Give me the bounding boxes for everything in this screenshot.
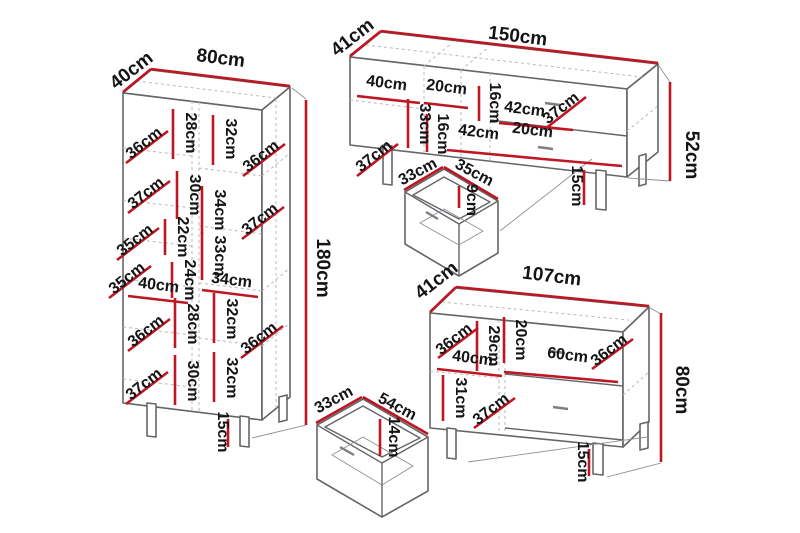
dim-label: 31cm — [452, 378, 469, 419]
furniture-dimensions-diagram: 40cm 80cm 180cm 15cm 36cm 28cm 32cm 36cm… — [0, 0, 800, 533]
dim-label: 30cm — [186, 175, 203, 216]
cabinet-leg — [279, 395, 287, 422]
dim-label: 32cm — [222, 119, 239, 160]
cabinet-leg — [240, 416, 249, 447]
extension-line — [292, 88, 306, 99]
cabinet-width-label: 80cm — [195, 45, 246, 72]
extension-line — [650, 308, 661, 314]
tv-drawer-height-label: 9cm — [463, 184, 480, 216]
sideboard-leg — [447, 428, 456, 459]
dim-label: 24cm — [181, 260, 198, 301]
diagram-canvas: 40cm 80cm 180cm 15cm 36cm 28cm 32cm 36cm… — [0, 0, 800, 533]
tvstand-leg — [596, 170, 606, 210]
dim-label: 28cm — [184, 304, 201, 345]
dim-label: 16cm — [486, 83, 503, 124]
cabinet-height-label: 180cm — [312, 238, 333, 297]
tall-cabinet: 40cm 80cm 180cm 15cm 36cm 28cm 32cm 36cm… — [106, 45, 333, 452]
sideboard-width-label: 107cm — [521, 263, 582, 291]
sideboard-drawer-detail: 33cm 54cm 14cm — [312, 383, 428, 517]
dim-label: 33cm — [416, 104, 433, 145]
extension-line — [628, 178, 670, 181]
dim-label: 28cm — [182, 113, 199, 154]
dim-label: 16cm — [434, 114, 451, 155]
extension-line — [252, 425, 306, 438]
sideboard: 41cm 107cm 80cm 15cm 36cm 29cm 20cm 40cm… — [411, 257, 692, 482]
dim-label: 32cm — [223, 358, 240, 399]
extension-line — [607, 463, 661, 477]
extension-line — [659, 66, 670, 82]
dim-label: 34cm — [211, 190, 228, 231]
sideboard-leg — [593, 443, 603, 475]
tvstand-leg — [639, 154, 646, 186]
sideboard-drawer-height-label: 14cm — [385, 417, 402, 458]
sideboard-leg-label: 15cm — [574, 442, 591, 483]
dim-label: 30cm — [184, 361, 201, 402]
dim-label: 32cm — [223, 299, 240, 340]
sideboard-leg — [640, 422, 648, 450]
cabinet-leg — [147, 403, 156, 437]
sideboard-height-label: 80cm — [671, 366, 692, 415]
tv-drawer-detail: 33cm 35cm 9cm — [396, 155, 498, 276]
dim-label: 22cm — [174, 217, 191, 258]
tvstand-leg-label: 15cm — [568, 166, 585, 207]
cabinet-leg-label: 15cm — [214, 412, 231, 453]
tv-stand: 41cm 150cm 52cm 15cm 40cm 20cm 16cm 42cm… — [327, 14, 702, 231]
dim-label: 20cm — [512, 320, 529, 361]
tvstand-height-label: 52cm — [681, 131, 702, 180]
